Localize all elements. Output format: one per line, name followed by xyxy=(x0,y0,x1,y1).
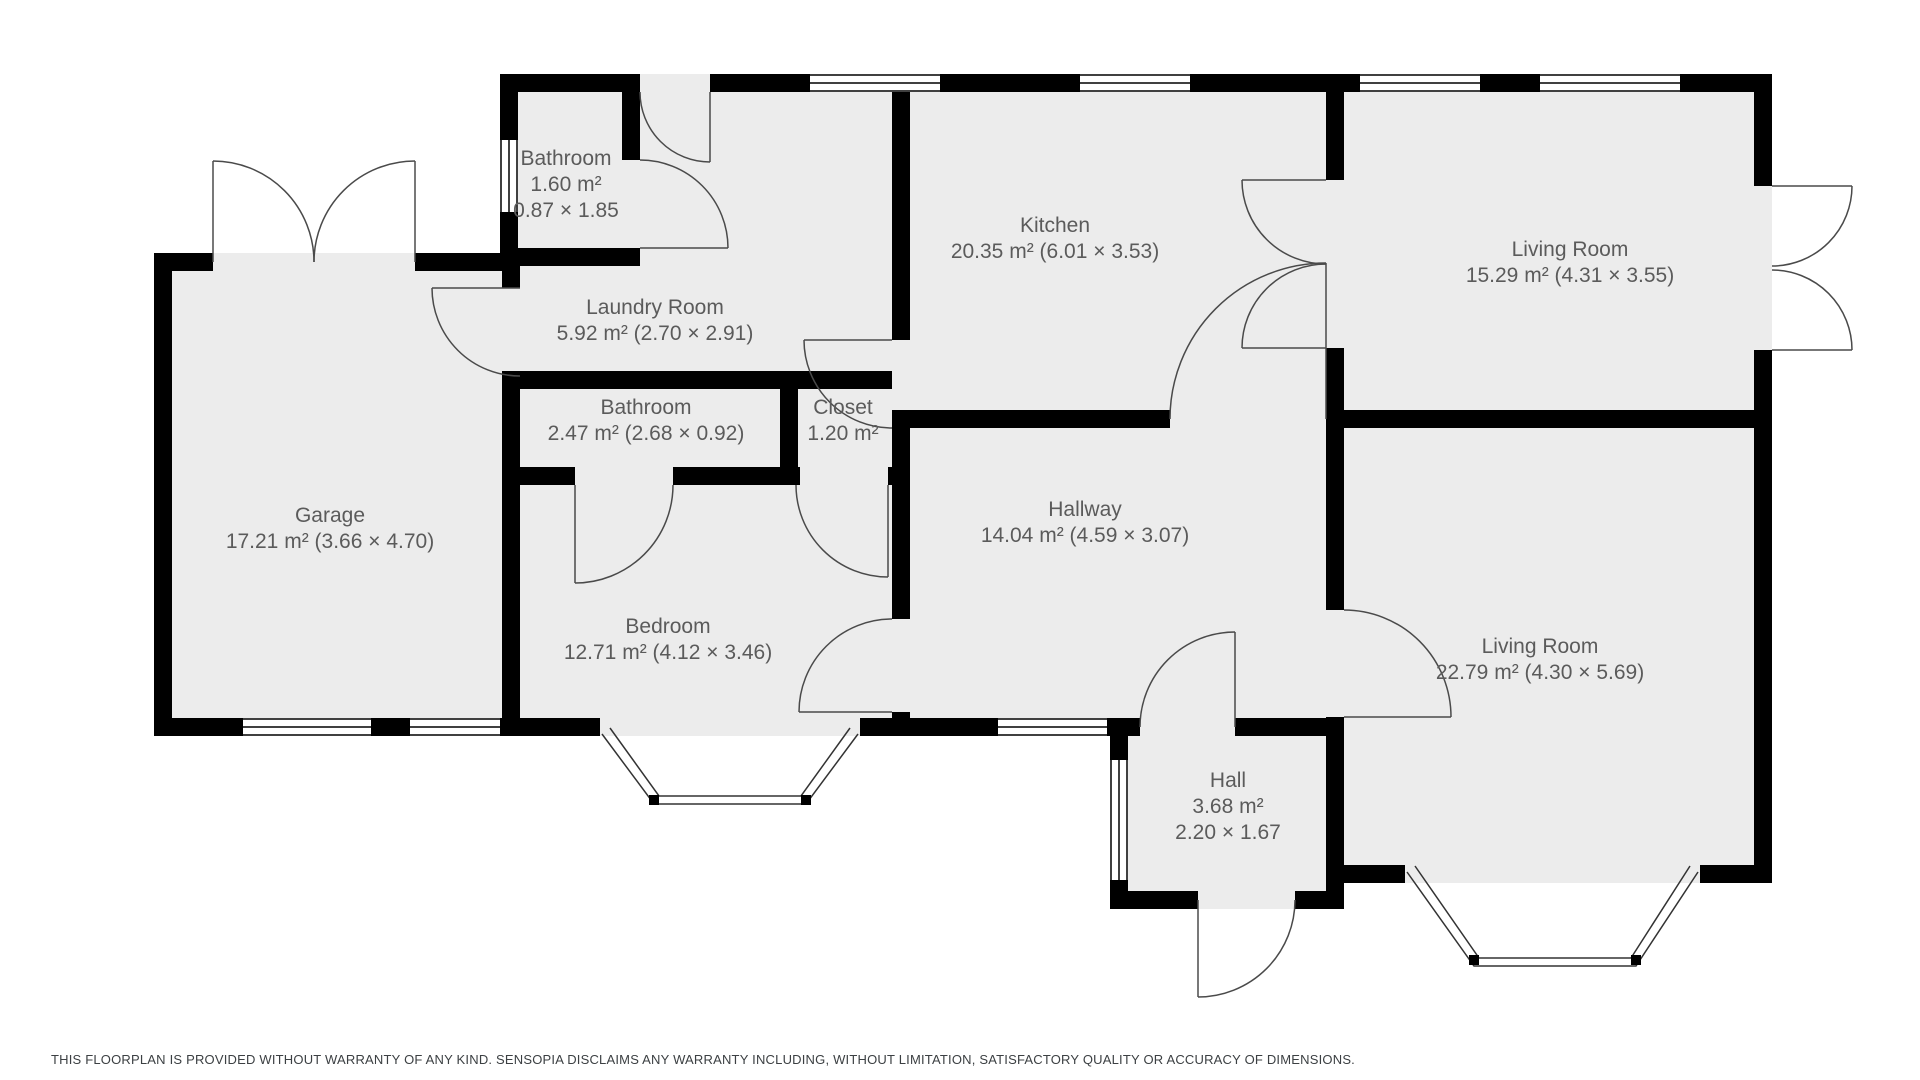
room-area: 15.29 m² (4.31 × 3.55) xyxy=(1466,263,1674,289)
door-french-exterior xyxy=(1772,186,1852,350)
room-dims: 0.87 × 1.85 xyxy=(513,198,619,224)
room-name: Living Room xyxy=(1466,237,1674,263)
room-area: 1.20 m² xyxy=(807,421,878,447)
floor-area xyxy=(154,74,1772,909)
room-name: Hallway xyxy=(981,497,1189,523)
room-name: Hall xyxy=(1175,768,1281,794)
room-label-hallway: Hallway 14.04 m² (4.59 × 3.07) xyxy=(981,497,1189,549)
room-name: Kitchen xyxy=(951,213,1159,239)
room-area: 22.79 m² (4.30 × 5.69) xyxy=(1436,660,1644,686)
room-name: Laundry Room xyxy=(557,295,754,321)
window-kitchen-1 xyxy=(810,74,940,92)
room-label-kitchen: Kitchen 20.35 m² (6.01 × 3.53) xyxy=(951,213,1159,265)
window-living-top-2 xyxy=(1540,74,1680,92)
room-area: 1.60 m² xyxy=(513,172,619,198)
window-garage-1 xyxy=(243,718,371,736)
room-name: Closet xyxy=(807,395,878,421)
room-label-hall: Hall 3.68 m² 2.20 × 1.67 xyxy=(1175,768,1281,846)
window-kitchen-2 xyxy=(1080,74,1190,92)
room-area: 17.21 m² (3.66 × 4.70) xyxy=(226,529,434,555)
room-area: 12.71 m² (4.12 × 3.46) xyxy=(564,640,772,666)
room-name: Bathroom xyxy=(548,395,745,421)
room-label-closet: Closet 1.20 m² xyxy=(807,395,878,447)
room-label-laundry-room: Laundry Room 5.92 m² (2.70 × 2.91) xyxy=(557,295,754,347)
room-area: 14.04 m² (4.59 × 3.07) xyxy=(981,523,1189,549)
room-name: Bathroom xyxy=(513,146,619,172)
room-name: Garage xyxy=(226,503,434,529)
room-dims: 2.20 × 1.67 xyxy=(1175,820,1281,846)
window-garage-2 xyxy=(410,718,500,736)
window-hallway xyxy=(998,718,1107,736)
room-area: 3.68 m² xyxy=(1175,794,1281,820)
room-label-living-room-top: Living Room 15.29 m² (4.31 × 3.55) xyxy=(1466,237,1674,289)
room-area: 5.92 m² (2.70 × 2.91) xyxy=(557,321,754,347)
bay-window-bedroom xyxy=(602,728,858,805)
room-label-bedroom: Bedroom 12.71 m² (4.12 × 3.46) xyxy=(564,614,772,666)
window-hall xyxy=(1110,760,1128,880)
door-hall-front xyxy=(1198,900,1295,997)
room-area: 2.47 m² (2.68 × 0.92) xyxy=(548,421,745,447)
room-label-garage: Garage 17.21 m² (3.66 × 4.70) xyxy=(226,503,434,555)
room-label-living-room-bottom: Living Room 22.79 m² (4.30 × 5.69) xyxy=(1436,634,1644,686)
room-area: 20.35 m² (6.01 × 3.53) xyxy=(951,239,1159,265)
disclaimer-text: THIS FLOORPLAN IS PROVIDED WITHOUT WARRA… xyxy=(51,1052,1355,1067)
room-label-bathroom-middle: Bathroom 2.47 m² (2.68 × 0.92) xyxy=(548,395,745,447)
door-garage-double xyxy=(213,161,415,262)
room-name: Bedroom xyxy=(564,614,772,640)
floorplan-page: Bathroom 1.60 m² 0.87 × 1.85 Laundry Roo… xyxy=(0,0,1920,1080)
room-label-bathroom-small: Bathroom 1.60 m² 0.87 × 1.85 xyxy=(513,146,619,224)
room-name: Living Room xyxy=(1436,634,1644,660)
window-living-top-1 xyxy=(1360,74,1480,92)
